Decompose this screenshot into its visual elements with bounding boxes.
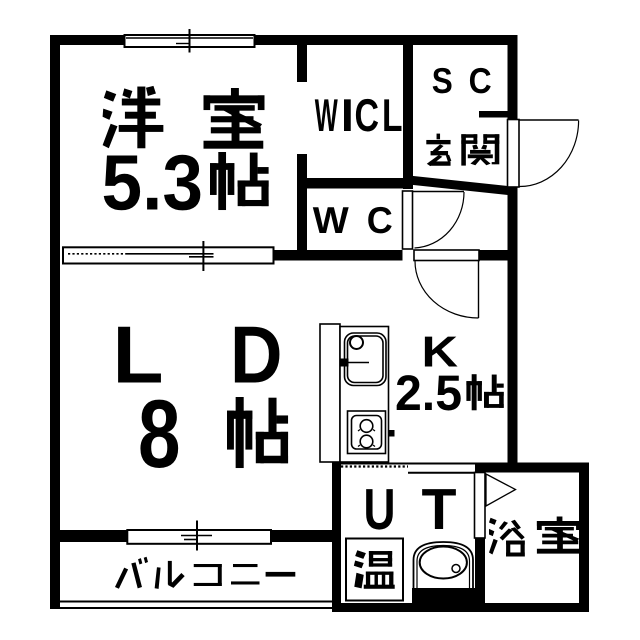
svg-text:D: D bbox=[230, 311, 283, 401]
svg-text:8: 8 bbox=[138, 381, 181, 488]
svg-text:I: I bbox=[341, 89, 354, 141]
svg-text:5.3: 5.3 bbox=[102, 139, 204, 227]
svg-text:T: T bbox=[422, 477, 457, 542]
svg-text:C: C bbox=[355, 89, 380, 141]
svg-text:S: S bbox=[432, 60, 453, 101]
svg-text:W: W bbox=[315, 89, 338, 141]
svg-text:C: C bbox=[367, 199, 393, 241]
svg-text:L: L bbox=[382, 89, 403, 141]
svg-text:U: U bbox=[364, 477, 396, 542]
svg-text:2.5: 2.5 bbox=[395, 365, 462, 421]
svg-text:C: C bbox=[469, 60, 492, 101]
svg-text:W: W bbox=[313, 199, 350, 241]
